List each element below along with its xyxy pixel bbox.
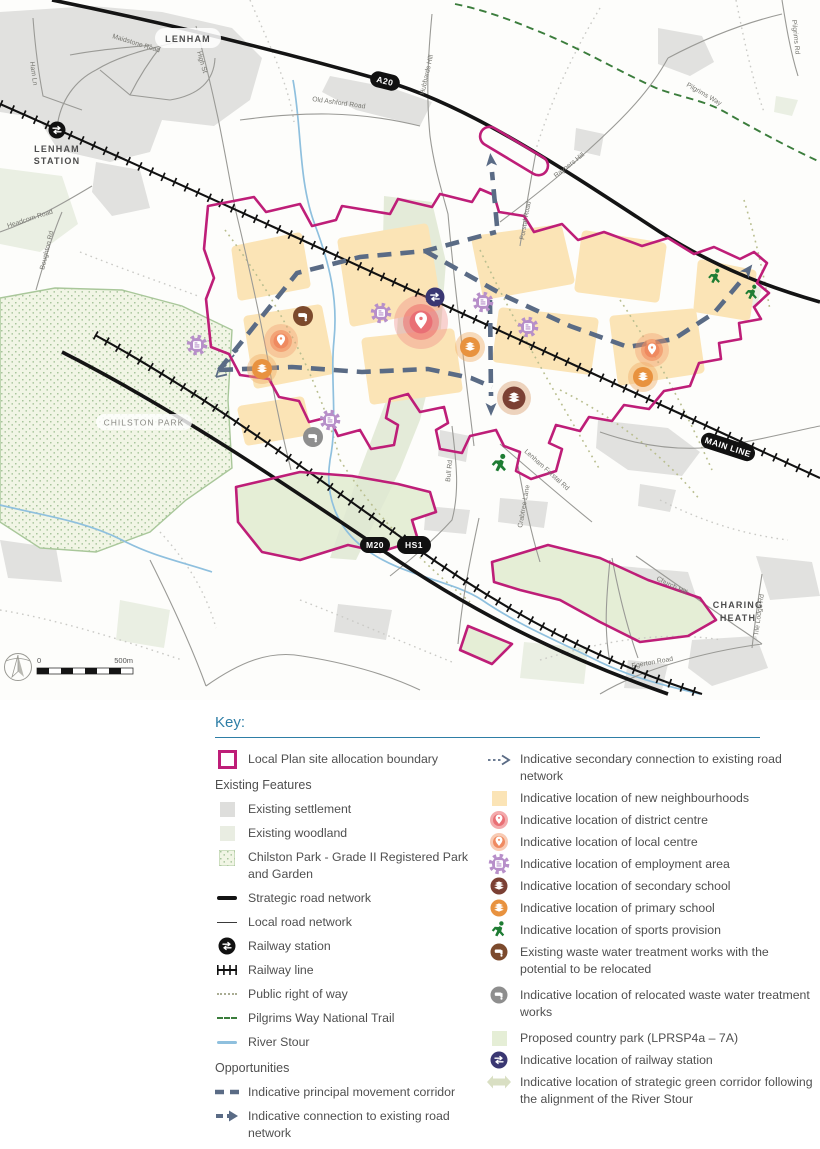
corridor-swatch <box>215 1088 239 1096</box>
key-column-right: Indicative secondary connection to exist… <box>487 751 817 1149</box>
map-key: Key: Local Plan site allocation boundary… <box>0 700 820 1149</box>
district-centre-icon <box>489 810 509 830</box>
key-item-public-right-of-way: Public right of way <box>215 986 487 1003</box>
key-item-railway-station: Railway station <box>215 938 487 955</box>
key-item-river-stour: River Stour <box>215 1034 487 1051</box>
key-item-employment-area: Indicative location of employment area <box>487 856 817 873</box>
green-corridor-arrow-icon <box>487 1075 511 1089</box>
key-item-new-neighbourhoods: Indicative location of new neighbourhood… <box>487 790 817 807</box>
key-column-left: Local Plan site allocation boundary Exis… <box>215 751 487 1149</box>
local-plan-map-page: LENHAM LENHAM STATION CHILSTON PARK CHAR… <box>0 0 820 1080</box>
key-item-district-centre: Indicative location of district centre <box>487 812 817 829</box>
secondary-connection-swatch <box>487 754 511 766</box>
m20-badge: M20 <box>360 537 390 553</box>
settlement-swatch <box>220 802 235 817</box>
secondary-school-icon <box>497 381 531 415</box>
chilston-park-label: CHILSTON PARK <box>96 414 192 430</box>
existing-waste-water-icon <box>293 306 313 326</box>
primary-school-icon <box>455 332 485 362</box>
key-item-country-park: Proposed country park (LPRSP4a – 7A) <box>487 1030 817 1047</box>
railway-station-icon <box>217 936 237 956</box>
hs1-badge: HS1 <box>397 536 431 554</box>
sports-provision-icon <box>489 920 509 940</box>
primary-school-icon <box>489 898 509 918</box>
primary-school-icon <box>247 354 277 384</box>
key-item-principal-corridor: Indicative principal movement corridor <box>215 1084 487 1101</box>
local-road-swatch <box>217 922 237 923</box>
svg-text:STATION: STATION <box>34 156 81 166</box>
boundary-swatch <box>218 750 237 769</box>
svg-text:CHARING: CHARING <box>713 600 763 610</box>
svg-text:HS1: HS1 <box>405 540 423 550</box>
railway-line-swatch <box>216 964 238 976</box>
key-item-local-road: Local road network <box>215 914 487 931</box>
svg-text:500m: 500m <box>114 656 133 665</box>
connection-arrow-swatch <box>215 1110 239 1122</box>
key-title: Key: <box>215 714 775 731</box>
key-item-local-centre: Indicative location of local centre <box>487 834 817 851</box>
svg-text:CHILSTON PARK: CHILSTON PARK <box>104 418 185 428</box>
local-centre-icon <box>489 832 509 852</box>
key-item-green-corridor: Indicative location of strategic green c… <box>487 1074 817 1108</box>
key-item-connection: Indicative connection to existing road n… <box>215 1108 487 1142</box>
lenham-label: LENHAM <box>155 28 221 48</box>
svg-text:M20: M20 <box>366 540 384 550</box>
pilgrims-way-swatch <box>217 1017 237 1019</box>
key-item-existing-woodland: Existing woodland <box>215 825 487 842</box>
prow-swatch <box>217 993 237 995</box>
svg-text:LENHAM: LENHAM <box>34 144 80 154</box>
key-item-pilgrims-way: Pilgrims Way National Trail <box>215 1010 487 1027</box>
relocated-waste-water-icon <box>489 985 509 1005</box>
svg-text:0: 0 <box>37 656 41 665</box>
key-section-existing-features: Existing Features <box>215 778 487 792</box>
key-item-existing-waste-water: Existing waste water treatment works wit… <box>487 944 817 978</box>
local-centre-icon <box>635 333 669 367</box>
key-item-relocated-waste-water: Indicative location of relocated waste w… <box>487 987 817 1021</box>
key-item-strategic-road: Strategic road network <box>215 890 487 907</box>
key-divider <box>215 737 760 738</box>
svg-text:HEATH: HEATH <box>720 613 756 623</box>
country-park-swatch <box>492 1031 507 1046</box>
svg-text:LENHAM: LENHAM <box>165 34 211 44</box>
site-allocation-map: LENHAM LENHAM STATION CHILSTON PARK CHAR… <box>0 0 820 700</box>
key-section-opportunities: Opportunities <box>215 1061 487 1075</box>
existing-waste-water-icon <box>489 942 509 962</box>
local-centre-icon <box>264 324 298 358</box>
key-item-chilston-park: Chilston Park - Grade II Registered Park… <box>215 849 487 883</box>
chilston-swatch <box>219 850 235 866</box>
key-item-sports-provision: Indicative location of sports provision <box>487 922 817 939</box>
key-item-secondary-connection: Indicative secondary connection to exist… <box>487 751 817 785</box>
indicative-railway-station-icon <box>426 288 445 307</box>
key-item-secondary-school: Indicative location of secondary school <box>487 878 817 895</box>
secondary-school-icon <box>489 876 509 896</box>
key-item-railway-line: Railway line <box>215 962 487 979</box>
neighbourhood-swatch <box>492 791 507 806</box>
map-canvas: LENHAM LENHAM STATION CHILSTON PARK CHAR… <box>0 0 820 700</box>
woodland-swatch <box>220 826 235 841</box>
lenham-station-icon <box>49 122 66 139</box>
primary-school-icon <box>628 362 658 392</box>
strategic-road-swatch <box>217 896 237 900</box>
river-swatch <box>217 1041 237 1044</box>
key-item-existing-settlement: Existing settlement <box>215 801 487 818</box>
key-item-boundary: Local Plan site allocation boundary <box>215 751 487 768</box>
employment-area-icon <box>488 853 510 875</box>
key-item-primary-school: Indicative location of primary school <box>487 900 817 917</box>
indicative-railway-station-icon <box>489 1050 509 1070</box>
relocated-waste-water-icon <box>303 427 323 447</box>
key-item-indicative-railway-station: Indicative location of railway station <box>487 1052 817 1069</box>
